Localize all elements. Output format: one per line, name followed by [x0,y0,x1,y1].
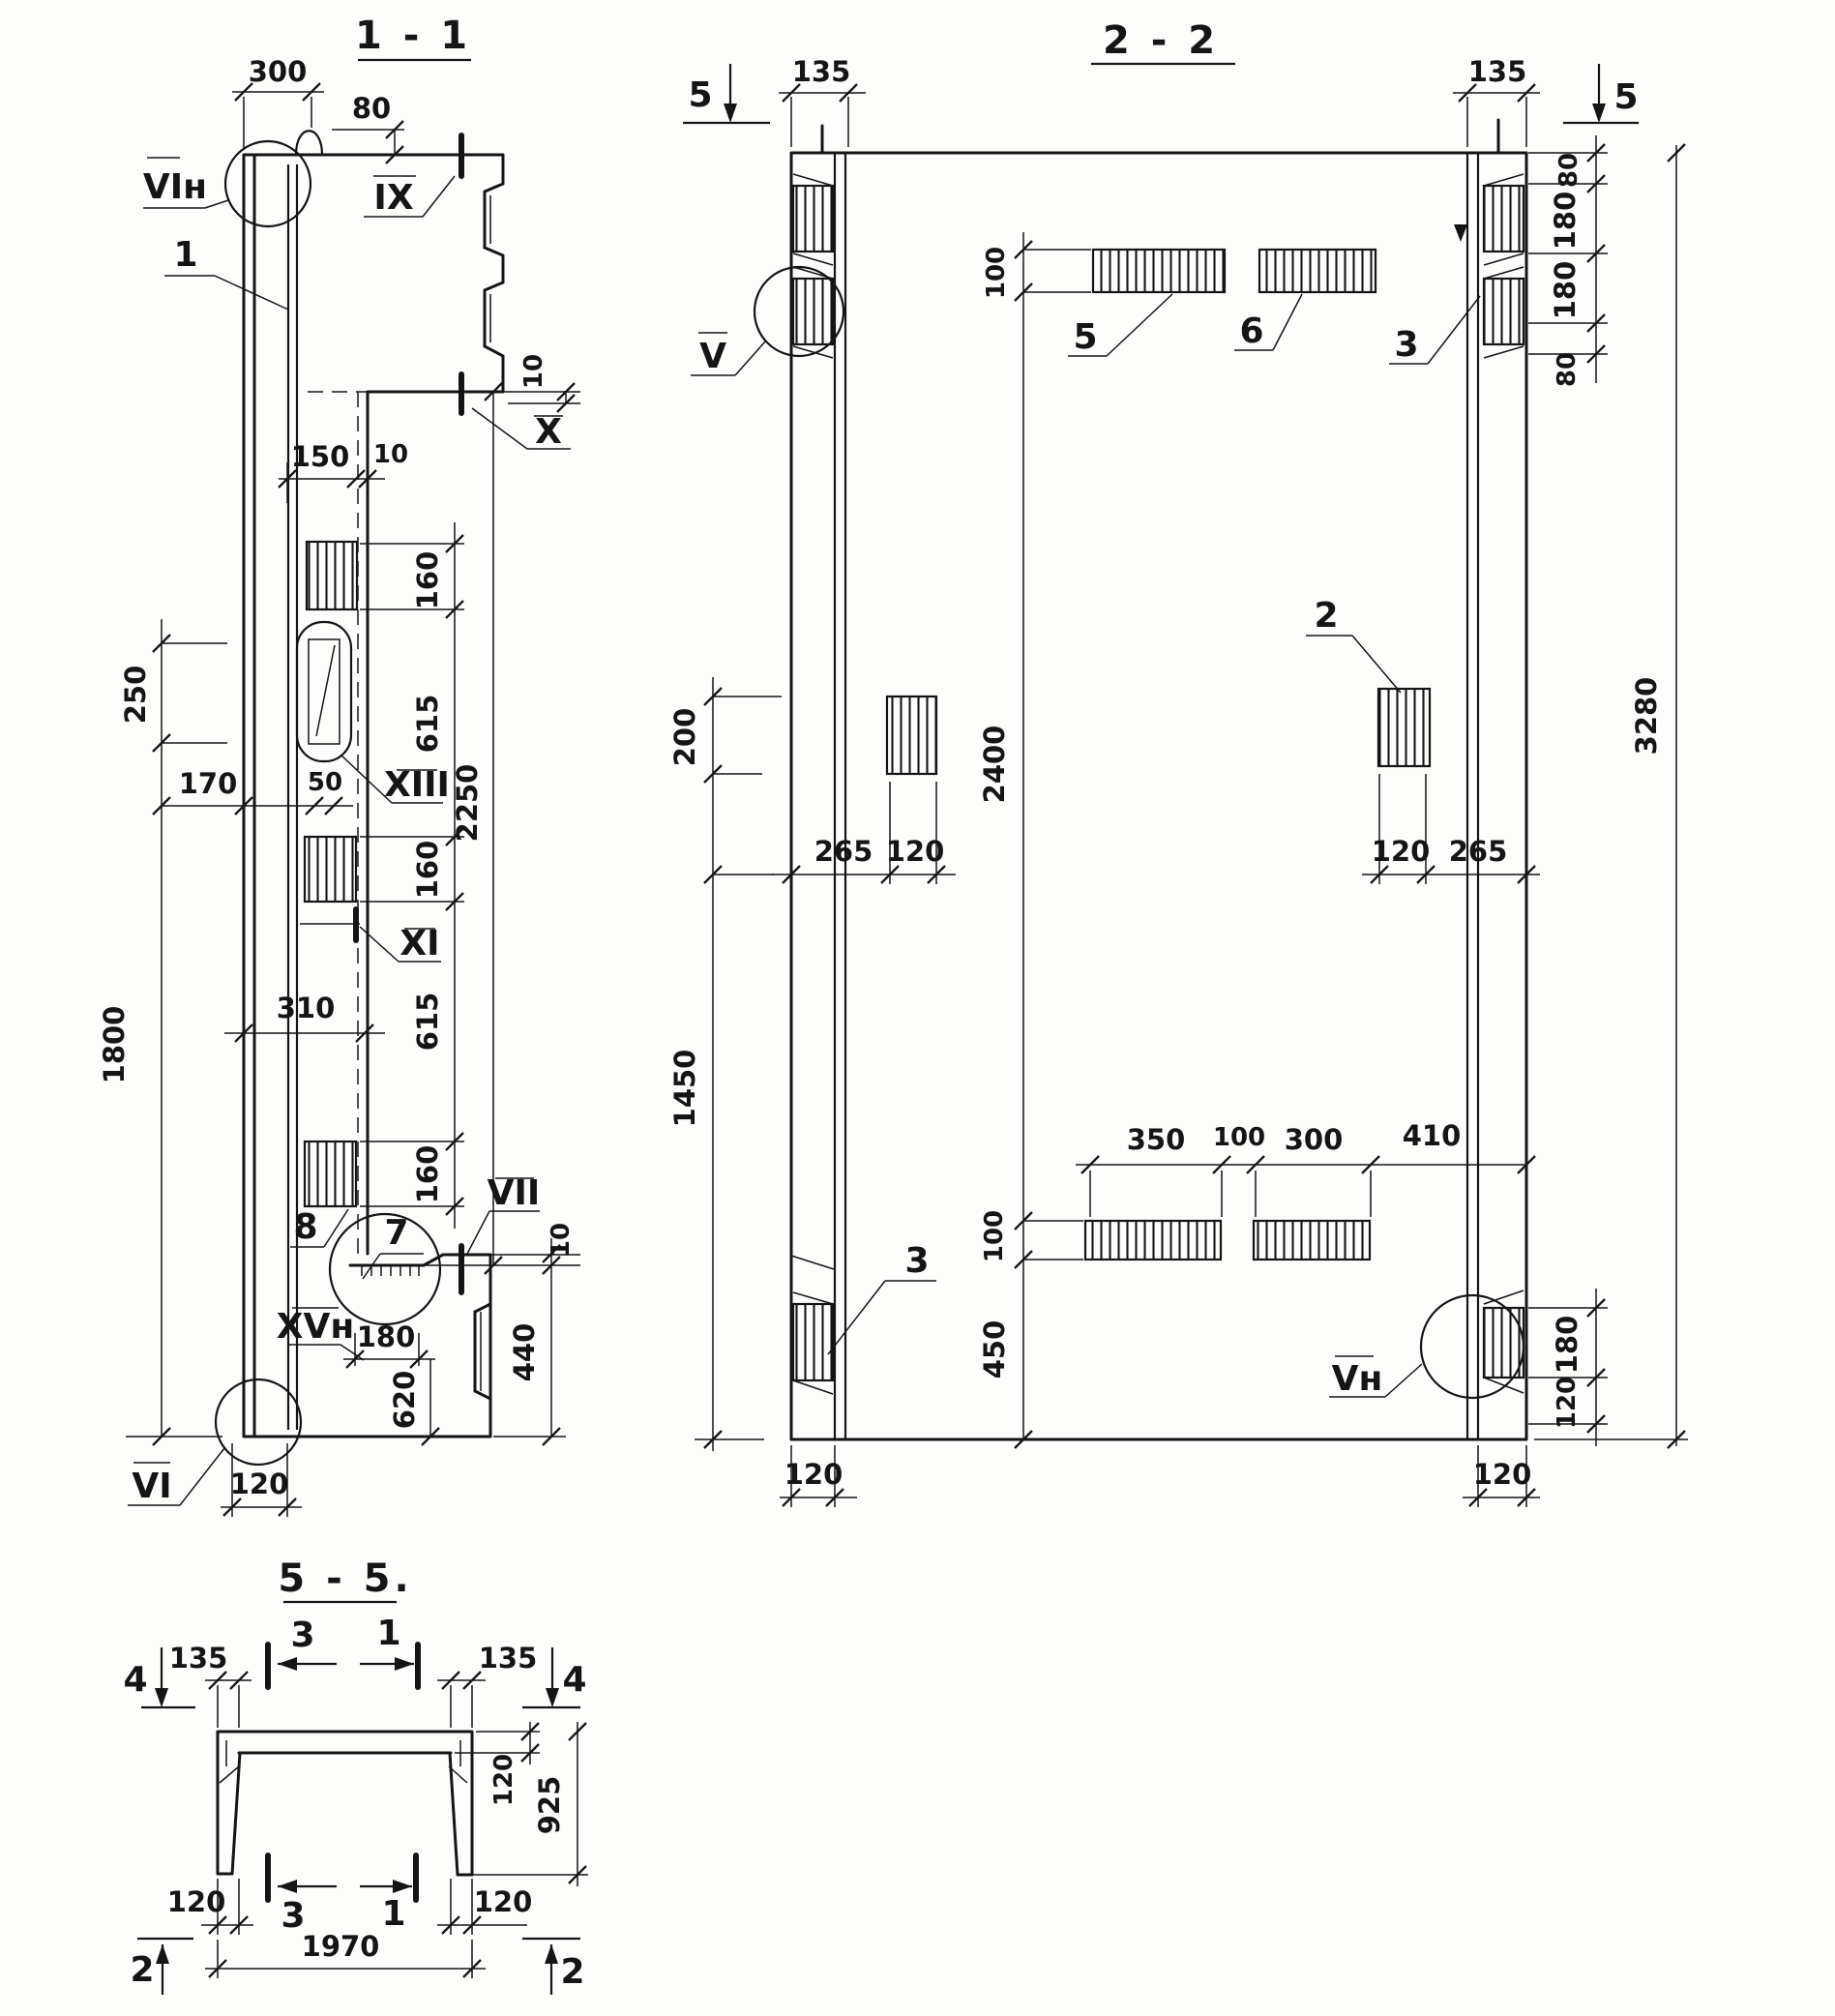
dim-135-right-55: 135 [437,1642,537,1728]
section-5-5: 5 - 5. 4 135 3 1 135 4 [123,1556,588,1995]
svg-text:100: 100 [980,1210,1009,1262]
svg-text:120: 120 [474,1885,533,1918]
dim-1970: 1970 [205,1930,486,1978]
svg-text:VII: VII [488,1173,541,1213]
embed-plates-1-1 [305,542,357,1206]
svg-text:3: 3 [1394,325,1418,365]
svg-text:120: 120 [1553,1377,1582,1429]
dim-440-10: 10 440 [493,1223,576,1445]
embed-plate [1484,1308,1524,1378]
marker-3-top: 3 [268,1616,337,1687]
embed-plates-2-2 [793,186,1524,1380]
embed-plate [1093,250,1225,292]
svg-text:135: 135 [792,55,851,88]
svg-text:410: 410 [1403,1119,1462,1152]
dim-135-right: 135 [1453,55,1540,147]
svg-text:300: 300 [1285,1123,1344,1156]
embed-plate [1484,186,1524,252]
svg-text:XIII: XIII [384,765,450,805]
svg-text:2: 2 [1314,596,1338,636]
svg-text:170: 170 [179,767,238,800]
embed-plate [1484,279,1524,344]
svg-text:180: 180 [1551,1316,1583,1375]
svg-text:1450: 1450 [668,1050,701,1128]
svg-text:XVн: XVн [277,1307,355,1347]
svg-text:8: 8 [293,1207,317,1247]
dim-250-1800: 250 1800 [98,619,227,1445]
svg-text:120: 120 [230,1468,289,1500]
svg-text:615: 615 [411,695,444,754]
marker-1-top: 1 [360,1614,418,1687]
dim-chain-left: 200 1450 [668,677,782,1451]
marker-5-right: 5 [1563,64,1639,123]
svg-text:1: 1 [381,1894,405,1934]
marker-3-bottom: 3 [268,1855,337,1936]
svg-text:2: 2 [130,1950,154,1990]
dim-135-left-55: 135 [169,1642,252,1728]
dim-10-flange: 10 [508,354,580,412]
marker-2-right: 2 [522,1939,585,1995]
embed-plate [307,542,357,609]
svg-text:100: 100 [982,247,1011,299]
svg-text:1800: 1800 [98,1006,131,1084]
svg-text:5: 5 [1613,77,1638,117]
svg-text:Vн: Vн [1332,1359,1383,1399]
dim-120-bottom-left: 120 [780,1445,857,1507]
embed-plate [887,697,936,774]
svg-text:120: 120 [784,1458,844,1491]
svg-text:10: 10 [519,354,548,389]
embed-plate [793,1304,833,1380]
label-x: X [472,408,571,452]
callout-8: 8 [290,1207,348,1247]
label-ix: IX [364,176,455,218]
svg-text:4: 4 [562,1660,586,1700]
dim-row-350-100-300-410: 350 100 300 410 [1076,1119,1535,1217]
embed-plate [1378,689,1430,766]
embed-plate [793,279,833,344]
svg-text:250: 250 [119,666,152,725]
svg-text:120: 120 [1372,835,1431,868]
section-5-5-title-text: 5 - 5. [278,1556,412,1601]
svg-text:80: 80 [352,92,391,125]
svg-text:2400: 2400 [978,726,1011,804]
dim-180-620: 180 620 [343,1320,439,1445]
dim-3280: 3280 [1534,144,1688,1448]
section-1-1-title: 1 - 1 [355,14,471,60]
dim-120-base: 120 [221,1443,302,1517]
embed-plate [1085,1221,1221,1260]
dim-chain-center: 100 2400 100 450 [978,232,1091,1448]
dim-310: 310 [224,992,385,1042]
svg-text:620: 620 [388,1371,421,1430]
section-2-2-title-text: 2 - 2 [1103,18,1219,63]
svg-text:5: 5 [1073,317,1097,357]
label-v: V [691,333,766,376]
svg-text:1970: 1970 [302,1930,380,1963]
anchor-slot [297,622,351,761]
section-1-1: 1 - 1 300 80 10 [98,14,580,1517]
dim-150-10: 150 10 [279,440,408,503]
dim-120-bottom-right: 120 [1463,1445,1540,1507]
marker-1-bottom: 1 [360,1855,416,1934]
svg-text:3: 3 [904,1241,929,1281]
svg-text:300: 300 [249,55,308,88]
dim-925: 925 [460,1722,588,1886]
callout-3-bottom: 3 [828,1241,936,1354]
svg-text:VI: VI [132,1467,171,1506]
svg-text:1: 1 [376,1614,400,1653]
svg-text:5: 5 [688,75,712,115]
svg-text:440: 440 [508,1323,541,1382]
svg-text:V: V [699,337,726,376]
embed-plate [305,1141,356,1206]
svg-text:120: 120 [489,1754,518,1806]
svg-text:160: 160 [411,1145,444,1204]
dim-chain-right-1-1: 160 615 160 615 160 [360,522,464,1229]
embed-plate [1254,1221,1370,1260]
callout-1: 1 [164,235,288,310]
svg-text:2: 2 [560,1952,584,1992]
label-xi: XI [360,924,441,964]
svg-text:6: 6 [1239,311,1263,351]
svg-text:135: 135 [1468,55,1527,88]
technical-drawing-sheet: 1 - 1 300 80 10 [0,0,1835,2016]
callout-5: 5 [1068,294,1172,357]
svg-text:3280: 3280 [1630,677,1663,756]
embed-plate [305,837,356,902]
svg-text:IX: IX [373,178,413,218]
label-xiii: XIII [340,755,450,805]
svg-text:925: 925 [533,1776,566,1835]
svg-text:265: 265 [814,835,873,868]
svg-text:3: 3 [290,1616,314,1655]
svg-text:450: 450 [978,1320,1011,1379]
callout-2: 2 [1306,596,1401,693]
dim-120-bottom-right-55: 120 [437,1879,532,1935]
svg-text:180: 180 [357,1320,416,1353]
label-xv-n: XVн [277,1307,364,1360]
svg-text:120: 120 [886,835,945,868]
section-1-1-title-text: 1 - 1 [355,14,471,58]
label-v-n: Vн [1329,1356,1422,1399]
embed-plate [1259,250,1376,292]
svg-text:615: 615 [411,993,444,1052]
svg-text:120: 120 [1473,1458,1532,1491]
callout-6: 6 [1234,294,1302,351]
svg-text:160: 160 [411,551,444,610]
svg-text:10: 10 [373,440,408,469]
dim-120-top-55: 120 [455,1722,540,1806]
svg-text:310: 310 [277,992,336,1024]
svg-text:265: 265 [1449,835,1508,868]
label-vi: VI [128,1448,224,1506]
svg-text:VIн: VIн [143,167,207,207]
svg-text:X: X [535,412,562,452]
embed-plate [793,186,833,252]
svg-text:100: 100 [1213,1123,1265,1152]
dim-120-bottom-left-55: 120 [167,1879,253,1935]
label-vi-n: VIн [143,158,228,208]
svg-text:160: 160 [411,841,444,900]
dim-265-120-left: 265 120 [772,782,956,884]
dim-chain-right-bottom: 180 120 [1528,1289,1608,1446]
dim-chain-right-top: 80 180 180 80 [1528,135,1608,387]
svg-text:150: 150 [291,440,350,473]
marker-2-left: 2 [130,1939,193,1995]
svg-text:XI: XI [400,924,439,964]
svg-text:200: 200 [668,708,701,767]
channel-outline [218,1732,472,1875]
section-2-2: 2 - 2 5 5 135 [668,18,1688,1507]
svg-text:50: 50 [308,768,342,797]
dim-300: 300 [232,55,324,150]
svg-text:180: 180 [1549,261,1582,320]
dim-80-loop: 80 [332,92,404,163]
svg-text:2250: 2250 [451,764,484,843]
dim-120-265-right: 120 265 [1362,774,1540,884]
svg-text:1: 1 [173,235,197,275]
section-5-5-title: 5 - 5. [278,1556,412,1602]
svg-text:135: 135 [479,1642,538,1675]
label-vii: VII [466,1173,540,1256]
svg-text:350: 350 [1127,1123,1186,1156]
drawing-canvas: 1 - 1 300 80 10 [0,0,1835,2016]
svg-text:120: 120 [167,1885,226,1918]
svg-text:10: 10 [547,1223,576,1258]
section-2-2-title: 2 - 2 [1091,18,1235,64]
svg-text:80: 80 [1554,153,1583,188]
svg-text:135: 135 [169,1642,228,1675]
svg-text:4: 4 [123,1660,147,1700]
svg-text:80: 80 [1553,352,1582,387]
dim-2250: 2250 [451,383,502,1274]
svg-text:180: 180 [1549,192,1582,251]
svg-text:7: 7 [384,1213,408,1253]
